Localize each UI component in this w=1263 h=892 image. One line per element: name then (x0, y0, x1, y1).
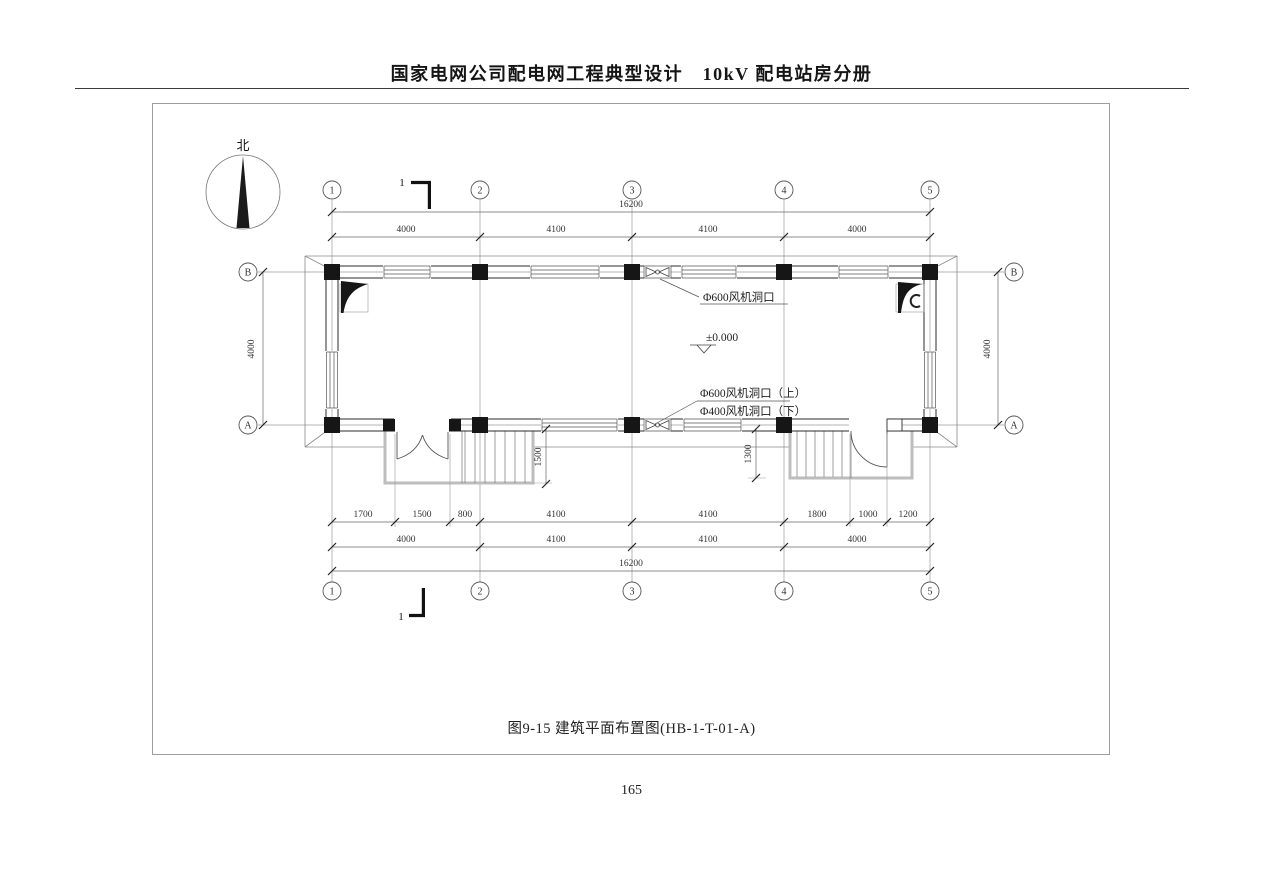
dim-right-height: 4000 (983, 339, 993, 358)
grid-bubble-label: 3 (630, 587, 635, 598)
section-mark-label: 1 (399, 177, 405, 189)
figure-caption: 图9-15 建筑平面布置图(HB-1-T-01-A) (0, 717, 1263, 738)
dim-porch-left: 1500 (534, 447, 544, 466)
grid-bubble-label: A (1010, 421, 1018, 432)
grid-bubble-label: 4 (782, 186, 787, 197)
dim-bottom-detail: 1700 (354, 510, 373, 520)
dim-bottom-detail: 4100 (699, 510, 718, 520)
grid-bubble-label: 2 (478, 186, 483, 197)
dim-top-span: 4100 (547, 225, 566, 235)
grid-bubble-label: B (1011, 268, 1018, 279)
grid-axes (258, 200, 1004, 582)
dim-bottom-span: 4100 (547, 535, 566, 545)
stairs (462, 431, 851, 483)
dim-bottom-detail: 1500 (413, 510, 432, 520)
columns (324, 264, 938, 433)
grid-bubble-label: A (244, 421, 252, 432)
section-mark-label: 1 (398, 611, 404, 623)
dim-top-overall: 16200 (619, 200, 643, 210)
north-arrow-icon: 北 (206, 138, 280, 229)
grid-bubble-label: 1 (330, 587, 335, 598)
dim-bottom-span: 4000 (848, 535, 867, 545)
dim-bottom-detail: 800 (458, 510, 473, 520)
dim-left-height: 4000 (247, 339, 257, 358)
dim-bottom-detail: 4100 (547, 510, 566, 520)
elevation-value: ±0.000 (706, 332, 738, 344)
page-number: 165 (0, 783, 1263, 799)
dim-top-span: 4100 (699, 225, 718, 235)
double-door (394, 418, 451, 460)
floor-plan-drawing: 16200 4000 4100 4100 4000 4000 4000 1700… (0, 0, 1263, 892)
dim-top-span: 4000 (397, 225, 416, 235)
fan-icon (644, 265, 671, 280)
dim-bottom-span: 4000 (397, 535, 416, 545)
north-label: 北 (236, 138, 249, 153)
grid-bubbles: 1 2 3 4 5 1 2 3 4 5 B A B A (239, 181, 1023, 600)
grid-bubble-label: B (245, 268, 252, 279)
fan-bottom-upper-label: Φ600风机洞口（上） (700, 386, 806, 400)
corner-bracket-icon (896, 282, 924, 313)
dim-bottom-overall: 16200 (619, 559, 643, 569)
fan-icon (644, 418, 671, 433)
annotations: Φ600风机洞口 Φ600风机洞口（上） Φ400风机洞口（下） ±0.000 (655, 279, 806, 424)
elevation-marker-icon: ±0.000 (690, 332, 738, 353)
single-door (849, 418, 902, 468)
corner-bracket-icon (340, 281, 368, 313)
grid-bubble-label: 1 (330, 186, 335, 197)
dim-bottom-detail: 1800 (808, 510, 827, 520)
dim-bottom-detail: 1200 (899, 510, 918, 520)
walls (326, 266, 936, 431)
dim-top-span: 4000 (848, 225, 867, 235)
windows (324, 264, 938, 433)
dim-porch-right: 1300 (744, 444, 754, 463)
fan-bottom-lower-label: Φ400风机洞口（下） (700, 404, 806, 418)
grid-bubble-label: 3 (630, 186, 635, 197)
fan-top-label: Φ600风机洞口 (703, 290, 775, 304)
grid-bubble-label: 4 (782, 587, 787, 598)
grid-bubble-label: 2 (478, 587, 483, 598)
scanned-document-page: { "header": { "title": "国家电网公司配电网工程典型设计 … (0, 0, 1263, 892)
grid-bubble-label: 5 (928, 186, 933, 197)
dim-bottom-detail: 1000 (859, 510, 878, 520)
section-mark-icon: 1 (399, 177, 431, 209)
grid-bubble-label: 5 (928, 587, 933, 598)
dim-bottom-span: 4100 (699, 535, 718, 545)
section-mark-icon: 1 (398, 588, 425, 623)
